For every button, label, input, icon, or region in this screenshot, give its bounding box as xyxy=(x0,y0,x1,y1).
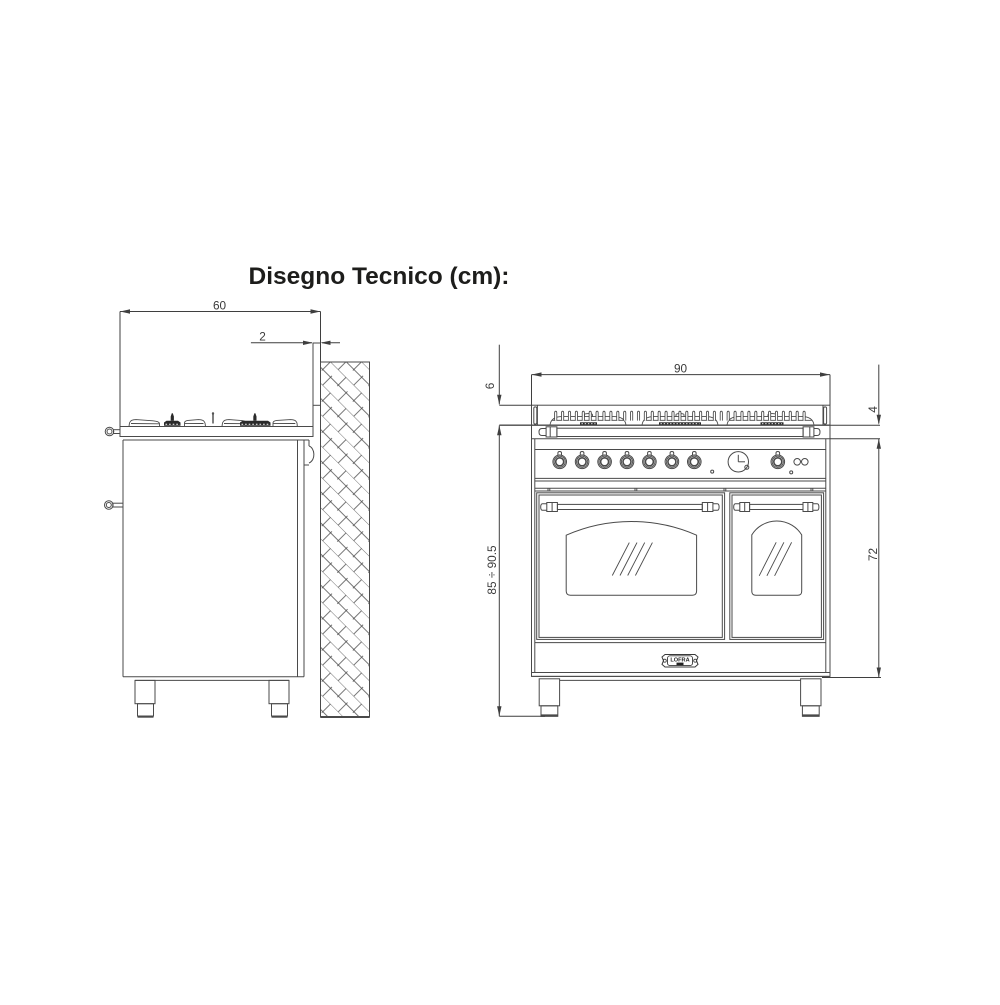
svg-text:4: 4 xyxy=(866,406,880,413)
svg-text:90: 90 xyxy=(674,362,688,376)
svg-text:6: 6 xyxy=(483,382,497,389)
svg-text:72: 72 xyxy=(866,548,880,561)
svg-text:2: 2 xyxy=(259,330,266,344)
svg-text:60: 60 xyxy=(213,299,227,313)
svg-text:85 ÷ 90.5: 85 ÷ 90.5 xyxy=(485,545,499,595)
svg-text:Disegno Tecnico (cm):: Disegno Tecnico (cm): xyxy=(249,263,510,290)
